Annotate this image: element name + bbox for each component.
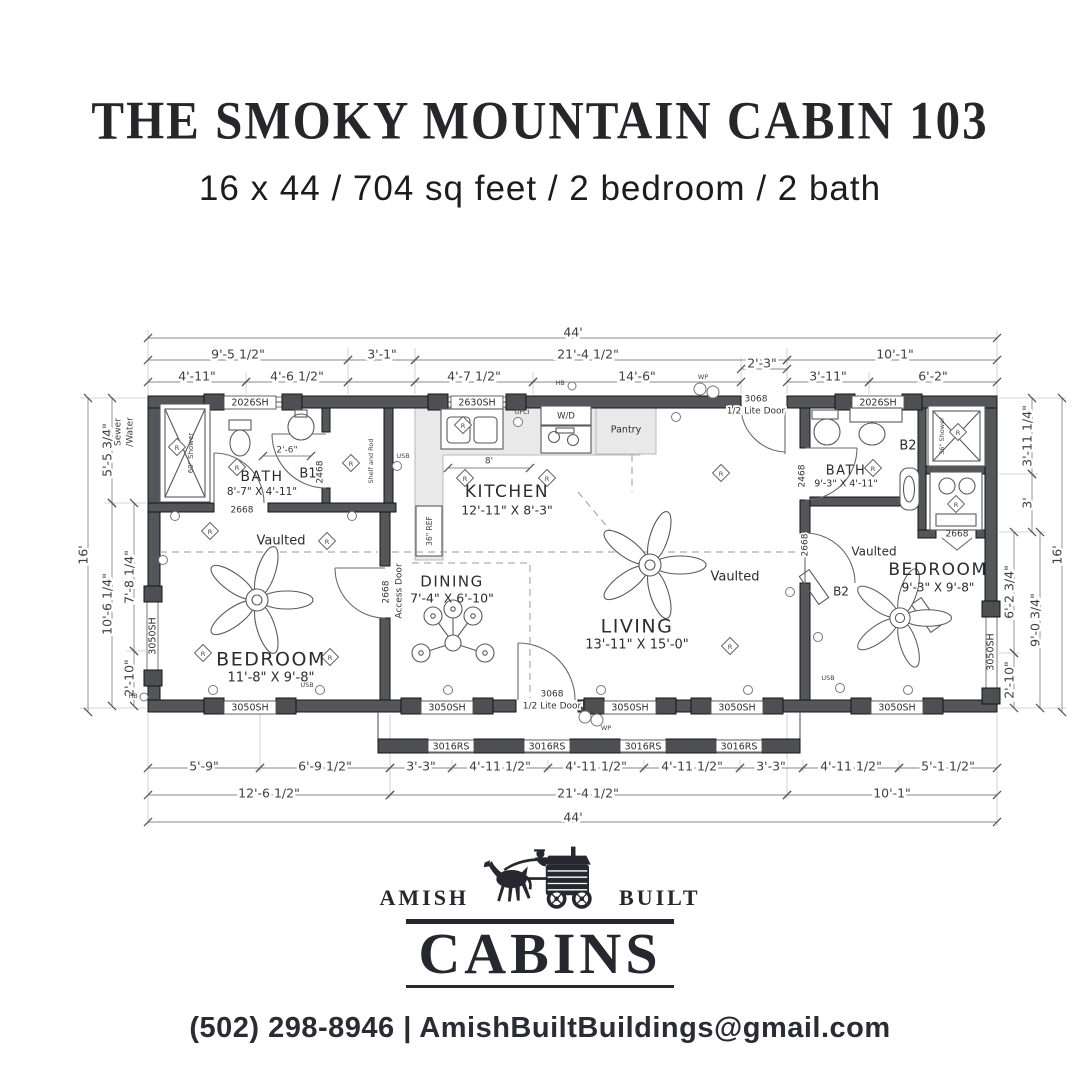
dim-label: 16' [76, 545, 91, 564]
dim-label: 4'-11" [178, 369, 216, 384]
shelf-label: Shelf and Rod [367, 438, 375, 483]
hb-label: HB [128, 692, 137, 700]
logo-rule-bottom [406, 985, 674, 988]
corner-sink [288, 410, 314, 440]
stove [541, 426, 591, 453]
dim-label: 6'-9 1/2" [298, 759, 352, 774]
sewer-note: Sewer [114, 418, 124, 446]
svg-text:R: R [871, 465, 876, 473]
closet-label: B2 [899, 439, 916, 454]
window-label: 3016RS [625, 742, 662, 753]
svg-text:R: R [728, 643, 733, 651]
logo-word-cabins: CABINS [418, 924, 661, 984]
dim-label: 7'-8 1/4" [122, 550, 137, 604]
bath2-vanity [850, 408, 902, 445]
room-name: BEDROOM [216, 649, 326, 671]
dim-label: 16' [1050, 545, 1065, 564]
door-label: 2468 [798, 464, 808, 487]
usb-label: USB [821, 674, 834, 682]
svg-text:R: R [208, 528, 213, 536]
usb-label: USB [396, 452, 409, 460]
room-size: 12'-11" X 8'-3" [461, 503, 553, 518]
svg-text:R: R [328, 654, 333, 662]
room-size: 13'-11" X 15'-0" [585, 638, 689, 653]
door-label: 2468 [316, 460, 326, 483]
closet-label: B2 [833, 585, 849, 599]
svg-text:R: R [235, 464, 240, 472]
dim-label: 9'-5 1/2" [211, 347, 265, 362]
vaulted-label: Vaulted [851, 545, 896, 559]
wp-label: WP [601, 724, 611, 732]
room-name: BEDROOM [888, 560, 987, 580]
dim-label: 4'-11 1/2" [820, 759, 882, 774]
room-name: BATH [240, 469, 283, 485]
svg-text:R: R [175, 444, 180, 452]
dim-label: 3'-3" [756, 759, 786, 774]
dim-label: 3'-3" [406, 759, 436, 774]
dim-label: 3' [1020, 497, 1035, 508]
door-label: 2668 [801, 533, 811, 556]
hb-label: HB [555, 379, 564, 387]
dim-label: 5'-9" [189, 759, 219, 774]
logo-word-amish: AMISH [379, 885, 469, 915]
shower-label: 36" Shower [938, 417, 946, 455]
vaulted-label: Vaulted [710, 570, 759, 585]
closet-label: B1 [299, 467, 316, 482]
shower-label: 60" Shower [187, 433, 195, 474]
window-label: 3016RS [433, 742, 470, 753]
dim-label: 2'-6" [276, 446, 297, 456]
svg-text:R: R [954, 501, 959, 509]
svg-text:R: R [719, 470, 724, 478]
dim-label: 3'-11" [809, 369, 847, 384]
dim-label: 10'-1" [873, 786, 911, 801]
window-label: 2630SH [458, 398, 495, 409]
brand-logo: AMISH [0, 843, 1080, 988]
vaulted-label: Vaulted [256, 534, 305, 549]
svg-text:R: R [461, 422, 466, 430]
svg-text:R: R [201, 650, 206, 658]
door-label: Access Door [395, 563, 405, 619]
fridge-label: 36" REF [425, 516, 434, 546]
window-label: 3050SH [878, 703, 915, 714]
tub [900, 468, 919, 510]
dim-label: 44' [563, 325, 582, 340]
washer-dryer-label: W/D [557, 412, 575, 422]
dim-label: 12'-6 1/2" [238, 786, 300, 801]
door-label: 2668 [946, 530, 969, 540]
chandelier [412, 600, 494, 662]
window-label: 3016RS [529, 742, 566, 753]
logo-word-built: BUILT [619, 885, 700, 915]
dim-label: 2'-10" [1002, 661, 1017, 699]
wp-label: WP [698, 373, 708, 381]
room-name: BATH [826, 464, 867, 479]
window-label: 3050SH [231, 703, 268, 714]
room-size: 9'-3" X 9'-8" [902, 581, 975, 595]
room-name: KITCHEN [465, 482, 549, 502]
kitchen-sink [441, 409, 503, 449]
svg-text:R: R [956, 429, 961, 437]
room-size: 8'-7" X 4'-11" [227, 486, 297, 498]
door-label: 2668 [382, 580, 392, 603]
logo-top-row: AMISH [379, 843, 700, 915]
dim-label: 10'-1" [876, 347, 914, 362]
window-label: 3016RS [721, 742, 758, 753]
window-label: 3050SH [428, 703, 465, 714]
door-label: 3068 [541, 690, 564, 700]
room-size: 11'-8" X 9'-8" [227, 671, 314, 686]
ceiling-fan [599, 509, 706, 621]
dim-label: 4'-11 1/2" [565, 759, 627, 774]
dim-label: 3'-1" [367, 347, 397, 362]
svg-text:R: R [325, 538, 330, 546]
window-label: 3050SH [611, 703, 648, 714]
gfci-label: GFCI [514, 408, 529, 416]
window-label: 3050SH [148, 617, 159, 654]
door-label: 2668 [231, 506, 254, 516]
window-label: 2026SH [859, 398, 896, 409]
dim-label: 4'-7 1/2" [447, 369, 501, 384]
door-label: 1/2 Lite Door [727, 407, 786, 417]
dim-label: 14'-6" [618, 369, 656, 384]
door-label: 3068 [745, 395, 768, 405]
dim-label: 6'-2" [918, 369, 948, 384]
horse-and-wagon-icon [481, 843, 607, 915]
dim-label: 44' [563, 810, 582, 825]
toilet [812, 410, 840, 445]
toilet [229, 420, 251, 456]
dim-label: 8' [485, 457, 493, 467]
dim-label: 21'-4 1/2" [557, 347, 619, 362]
window-label: 3050SH [718, 703, 755, 714]
dim-label: 3'-11 1/4" [1020, 405, 1035, 467]
ceiling-fan [206, 544, 313, 656]
contact-line: (502) 298-8946 | AmishBuiltBuildings@gma… [0, 1012, 1080, 1045]
dim-label: 9'-0 3/4" [1028, 593, 1043, 647]
room-name: LIVING [601, 616, 674, 638]
room-size: 7'-4" X 6'-10" [410, 591, 494, 606]
dim-label: 5'-5 3/4" [100, 423, 115, 477]
room-name: DINING [420, 573, 483, 591]
dim-label: 5'-1 1/2" [921, 759, 975, 774]
door-label: 1/2 Lite Door [523, 702, 582, 712]
window-label: 2026SH [231, 398, 268, 409]
window-label: 3050SH [986, 633, 997, 670]
water-note: /Water [126, 417, 136, 447]
shower-60 [160, 404, 210, 502]
dim-label: 4'-11 1/2" [661, 759, 723, 774]
pantry-label: Pantry [611, 425, 642, 436]
dim-label: 6'-2 3/4" [1002, 565, 1017, 619]
dim-label: 4'-6 1/2" [270, 369, 324, 384]
dim-label: 21'-4 1/2" [557, 786, 619, 801]
flyer-page: THE SMOKY MOUNTAIN CABIN 103 16 x 44 / 7… [0, 0, 1080, 1080]
dim-label: 4'-11 1/2" [469, 759, 531, 774]
dim-label: 10'-6 1/4" [100, 573, 115, 635]
room-size: 9'-3" X 4'-11" [814, 479, 878, 490]
dim-label: 2'-3" [747, 356, 777, 371]
svg-text:R: R [349, 460, 354, 468]
